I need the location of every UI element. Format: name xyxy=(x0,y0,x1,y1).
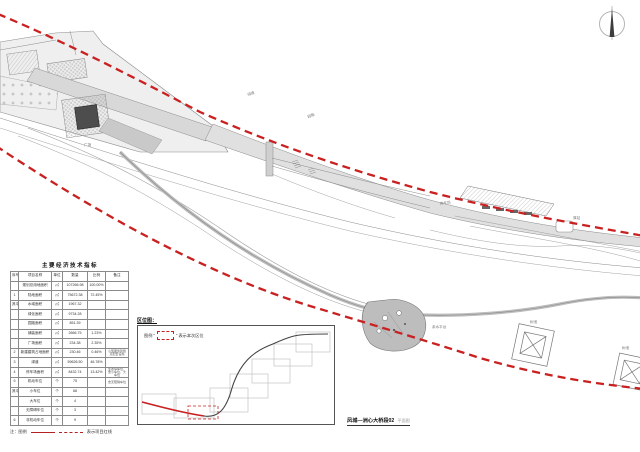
sheet-caption: 凤城—洲心大桥段02平面图 xyxy=(347,417,410,426)
table-row: 规划总用地面积㎡107266.98100.00% xyxy=(11,281,129,291)
table-header-cell: 比例 xyxy=(88,272,106,282)
table-cell: 1 xyxy=(11,291,19,301)
table-cell: 72.45% xyxy=(88,291,106,301)
table-cell xyxy=(11,319,19,329)
table-cell xyxy=(88,397,106,407)
table-cell: 个 xyxy=(52,406,63,416)
table-cell: 3 xyxy=(63,406,88,416)
plaza-upper-left xyxy=(0,31,228,154)
table-cell: ㎡ xyxy=(52,358,63,368)
table-cell: 9 xyxy=(63,416,88,426)
table-cell xyxy=(11,339,19,349)
table-cell: 陆地面积 xyxy=(19,291,52,301)
sheet-caption-sub: 平面图 xyxy=(397,418,410,423)
table-cell: 个 xyxy=(52,377,63,387)
table-cell: ㎡ xyxy=(52,339,63,349)
table-cell xyxy=(88,387,106,397)
table-header-cell: 项目名称 xyxy=(19,272,52,282)
table-cell: 广场面积 xyxy=(19,339,52,349)
table-cell: 5 xyxy=(11,377,19,387)
pavilion-structure xyxy=(75,105,100,130)
plan-label: 园路 xyxy=(307,112,316,119)
table-cell xyxy=(106,329,129,339)
table-cell: 绿化面积 xyxy=(19,310,52,320)
table-cell: 75672.38 xyxy=(63,291,88,301)
table-row: 2新建建筑占地面积㎡230.460.46%小型服务建筑及配套设施 xyxy=(11,348,129,358)
table-cell xyxy=(106,300,129,310)
table-cell: 机动车位 xyxy=(19,377,52,387)
table-cell xyxy=(88,377,106,387)
tree-pit-square-2 xyxy=(613,353,640,391)
location-map-title: 区位图： xyxy=(137,317,335,324)
red-solid-line-sample xyxy=(31,432,55,433)
table-cell xyxy=(88,310,106,320)
table-header-cell: 序号 xyxy=(11,272,19,282)
table-cell: 园路面积 xyxy=(19,319,52,329)
table-cell: 绿道 xyxy=(19,358,52,368)
table-cell: ㎡ xyxy=(52,281,63,291)
table-cell: ㎡ xyxy=(52,310,63,320)
table-cell: 6 xyxy=(11,416,19,426)
table-cell: 无障碍车位 xyxy=(19,406,52,416)
table-row: 绿化面积㎡9734.28 xyxy=(11,310,129,320)
table-cell: ㎡ xyxy=(52,319,63,329)
table-cell: 铺装面积 xyxy=(19,329,52,339)
table-cell: ㎡ xyxy=(52,300,63,310)
table-cell: 个 xyxy=(52,397,63,407)
table-cell xyxy=(106,339,129,349)
table-cell: 规划总用地面积 xyxy=(19,281,52,291)
table-cell: 75 xyxy=(63,377,88,387)
plan-label: 驿站 xyxy=(573,215,581,220)
greenway-corridor xyxy=(0,118,640,276)
table-cell xyxy=(11,406,19,416)
legend-suffix: ” 表示本次区位 xyxy=(176,333,204,339)
table-cell: 大车位 xyxy=(19,397,52,407)
table-row: 广场面积㎡234.382.35% xyxy=(11,339,129,349)
table-cell: 水域面积 xyxy=(19,300,52,310)
table-cell: 2 xyxy=(11,348,19,358)
table-cell xyxy=(88,416,106,426)
table-cell: 0.46% xyxy=(88,348,106,358)
table-cell xyxy=(11,281,19,291)
table-header-cell: 数量 xyxy=(63,272,88,282)
table-header-cell: 备注 xyxy=(106,272,129,282)
north-arrow-icon xyxy=(600,6,625,40)
table-cell xyxy=(106,310,129,320)
table-row: 园路面积㎡851.39 xyxy=(11,319,129,329)
legend-note: 注：图例 表示项目红线 xyxy=(10,429,112,435)
table-cell xyxy=(88,300,106,310)
table-cell xyxy=(106,406,129,416)
table-cell: 2666.75 xyxy=(63,329,88,339)
table-cell: 停车场面积 xyxy=(19,367,52,377)
table-cell: 100.00% xyxy=(88,281,106,291)
table-row: 3绿道㎡59626.5046.78% xyxy=(11,358,129,368)
plan-label: 绿道 xyxy=(247,90,256,97)
table-cell: 3 xyxy=(11,358,19,368)
table-cell xyxy=(106,358,129,368)
table-cell xyxy=(106,319,129,329)
table-row: 其中小车位个68 xyxy=(11,387,129,397)
table-cell: ㎡ xyxy=(52,329,63,339)
table-cell: 新建建筑占地面积 xyxy=(19,348,52,358)
project-location-box xyxy=(188,406,218,419)
table-cell: 230.46 xyxy=(63,348,88,358)
table-header-row: 序号项目名称单位数量比例备注 xyxy=(11,272,129,282)
economic-indicator-table: 主要经济技术指标 序号项目名称单位数量比例备注 规划总用地面积㎡107266.9… xyxy=(10,261,130,426)
table-cell: 2.35% xyxy=(88,339,106,349)
table-cell: 个 xyxy=(52,387,63,397)
location-map: 区位图： 图例 “ ” 表示本次区位 xyxy=(137,317,335,425)
sheet-caption-main: 凤城—洲心大桥段02 xyxy=(347,418,394,424)
location-map-frame: 图例 “ ” 表示本次区位 xyxy=(137,325,335,425)
table-cell: 68 xyxy=(63,387,88,397)
red-dashed-line-sample xyxy=(59,432,83,433)
table-cell xyxy=(106,416,129,426)
table-cell: 234.38 xyxy=(63,339,88,349)
table-cell: 9734.28 xyxy=(63,310,88,320)
table-row: 其中水域面积㎡1967.32 xyxy=(11,300,129,310)
table-cell xyxy=(106,397,129,407)
plan-label: 亲水平台 xyxy=(432,324,447,329)
table-cell: 小型服务建筑及配套设施 xyxy=(106,348,129,358)
table-cell: 非机动车位 xyxy=(19,416,52,426)
table-cell xyxy=(88,406,106,416)
location-map-drawing xyxy=(138,326,334,424)
table-cell: 8432.74 xyxy=(63,367,88,377)
table-row: 6非机动车位个9 xyxy=(11,416,129,426)
table-cell: 其中 xyxy=(11,387,19,397)
table-cell: ㎡ xyxy=(52,291,63,301)
table-row: 1陆地面积㎡75672.3872.45% xyxy=(11,291,129,301)
red-dashed-box-sample xyxy=(157,331,174,340)
plan-label: 树池 xyxy=(622,345,630,350)
table-cell: ㎡ xyxy=(52,348,63,358)
table-cell xyxy=(11,329,19,339)
table-cell xyxy=(88,319,106,329)
table-cell: 含无障碍车位 xyxy=(106,377,129,387)
location-map-legend: 图例 “ ” 表示本次区位 xyxy=(144,331,204,340)
table-cell: 4 xyxy=(63,397,88,407)
legend-note-prefix: 注：图例 xyxy=(10,429,27,435)
legend-prefix: 图例 “ xyxy=(144,333,155,339)
table-cell: 4 xyxy=(11,367,19,377)
table-row: 大车位个4 xyxy=(11,397,129,407)
table-cell xyxy=(11,310,19,320)
table-cell: 1967.32 xyxy=(63,300,88,310)
table-cell xyxy=(106,281,129,291)
plan-label: 树池 xyxy=(530,319,538,324)
table-cell: 107266.98 xyxy=(63,281,88,291)
table-cell: 个 xyxy=(52,416,63,426)
tree-pit-square-1 xyxy=(512,324,555,367)
legend-note-text: 表示项目红线 xyxy=(87,429,112,435)
table-cell: 13.42% xyxy=(88,367,106,377)
table-cell: 其中 xyxy=(11,300,19,310)
table-cell xyxy=(106,387,129,397)
table-row: 4停车场面积㎡8432.7413.42%生态停车位，含小车位、大车位 xyxy=(11,367,129,377)
table-cell: ㎡ xyxy=(52,367,63,377)
table-row: 无障碍车位个3 xyxy=(11,406,129,416)
table-cell xyxy=(11,397,19,407)
table-cell: 生态停车位，含小车位、大车位 xyxy=(106,367,129,377)
table-row: 5机动车位个75含无障碍车位 xyxy=(11,377,129,387)
table-cell: 59626.50 xyxy=(63,358,88,368)
table-header-cell: 单位 xyxy=(52,272,63,282)
table-cell xyxy=(106,291,129,301)
table-cell: 46.78% xyxy=(88,358,106,368)
table-row: 铺装面积㎡2666.751.23% xyxy=(11,329,129,339)
table-cell: 851.39 xyxy=(63,319,88,329)
table-cell: 1.23% xyxy=(88,329,106,339)
table-cell: 小车位 xyxy=(19,387,52,397)
plan-label: 广场 xyxy=(84,142,92,147)
table-title: 主要经济技术指标 xyxy=(10,261,130,269)
